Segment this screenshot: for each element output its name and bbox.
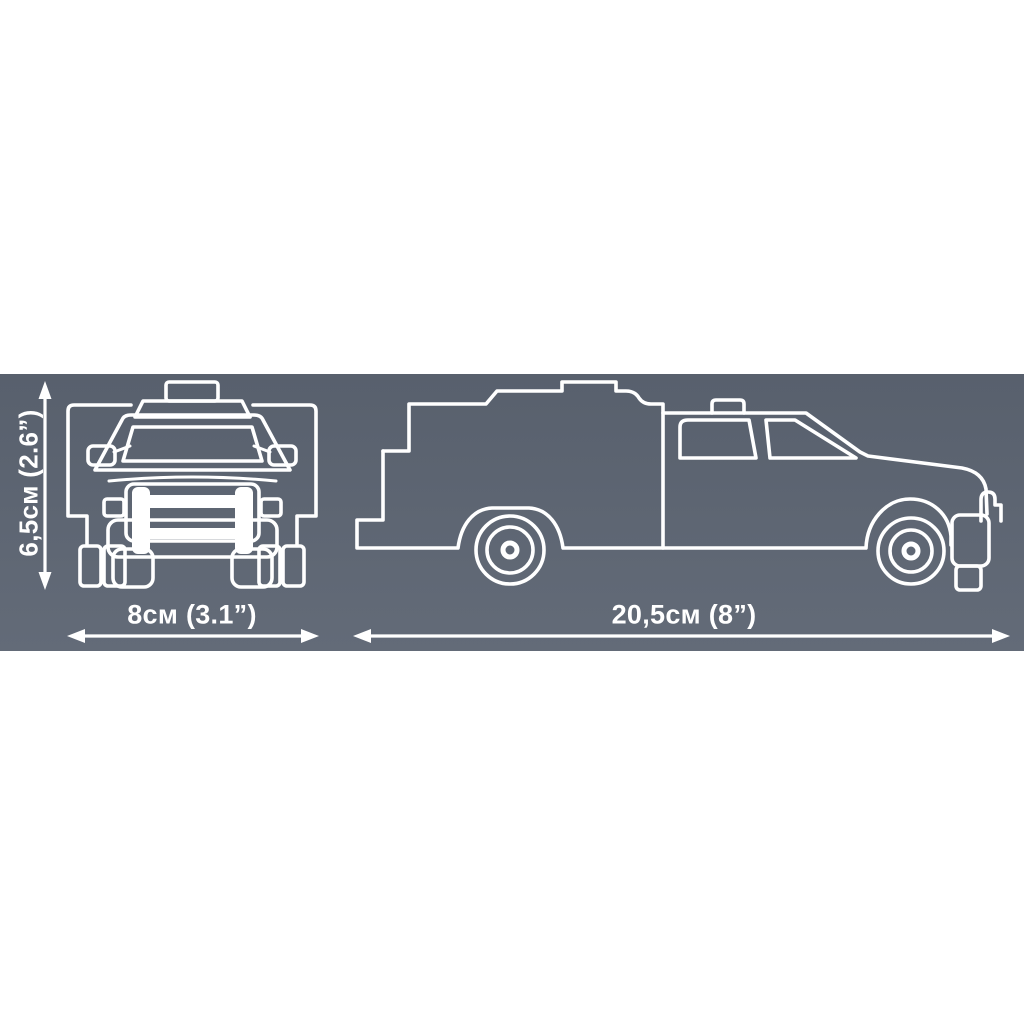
cab-roof-hood	[663, 413, 987, 514]
front-wheel	[878, 518, 944, 584]
product-dimensions-image: 6,5см (2.6”) 8см (3.1”) 20,5см (8”)	[0, 0, 1024, 1024]
mud-flap	[80, 546, 101, 586]
dimension-diagram	[0, 0, 1024, 1024]
rear-wheel	[476, 516, 544, 584]
width-dimension-arrow	[67, 629, 319, 643]
mud-flap	[283, 546, 304, 586]
windshield	[123, 427, 262, 461]
lower-silhouette	[357, 451, 951, 548]
length-dimension-label: 20,5см (8”)	[612, 600, 757, 631]
height-dimension-label: 6,5см (2.6”)	[14, 409, 45, 556]
length-dimension-arrow	[353, 629, 1010, 643]
hood-crease	[109, 477, 276, 481]
front-bumper-assembly	[952, 492, 1001, 590]
front-tire	[113, 549, 153, 587]
roof-beacon	[166, 382, 218, 401]
roof-marker-light	[712, 400, 744, 413]
headlight	[104, 499, 124, 516]
width-dimension-label: 8см (3.1”)	[127, 600, 257, 631]
headlight	[261, 499, 281, 516]
left-body-panel	[68, 405, 131, 544]
right-body-panel	[253, 405, 316, 544]
rear-door-window	[680, 420, 756, 458]
bed-tank-profile	[383, 382, 663, 548]
side-view-drawing	[357, 382, 1001, 590]
front-tire	[232, 549, 272, 587]
front-view-drawing	[68, 382, 316, 587]
